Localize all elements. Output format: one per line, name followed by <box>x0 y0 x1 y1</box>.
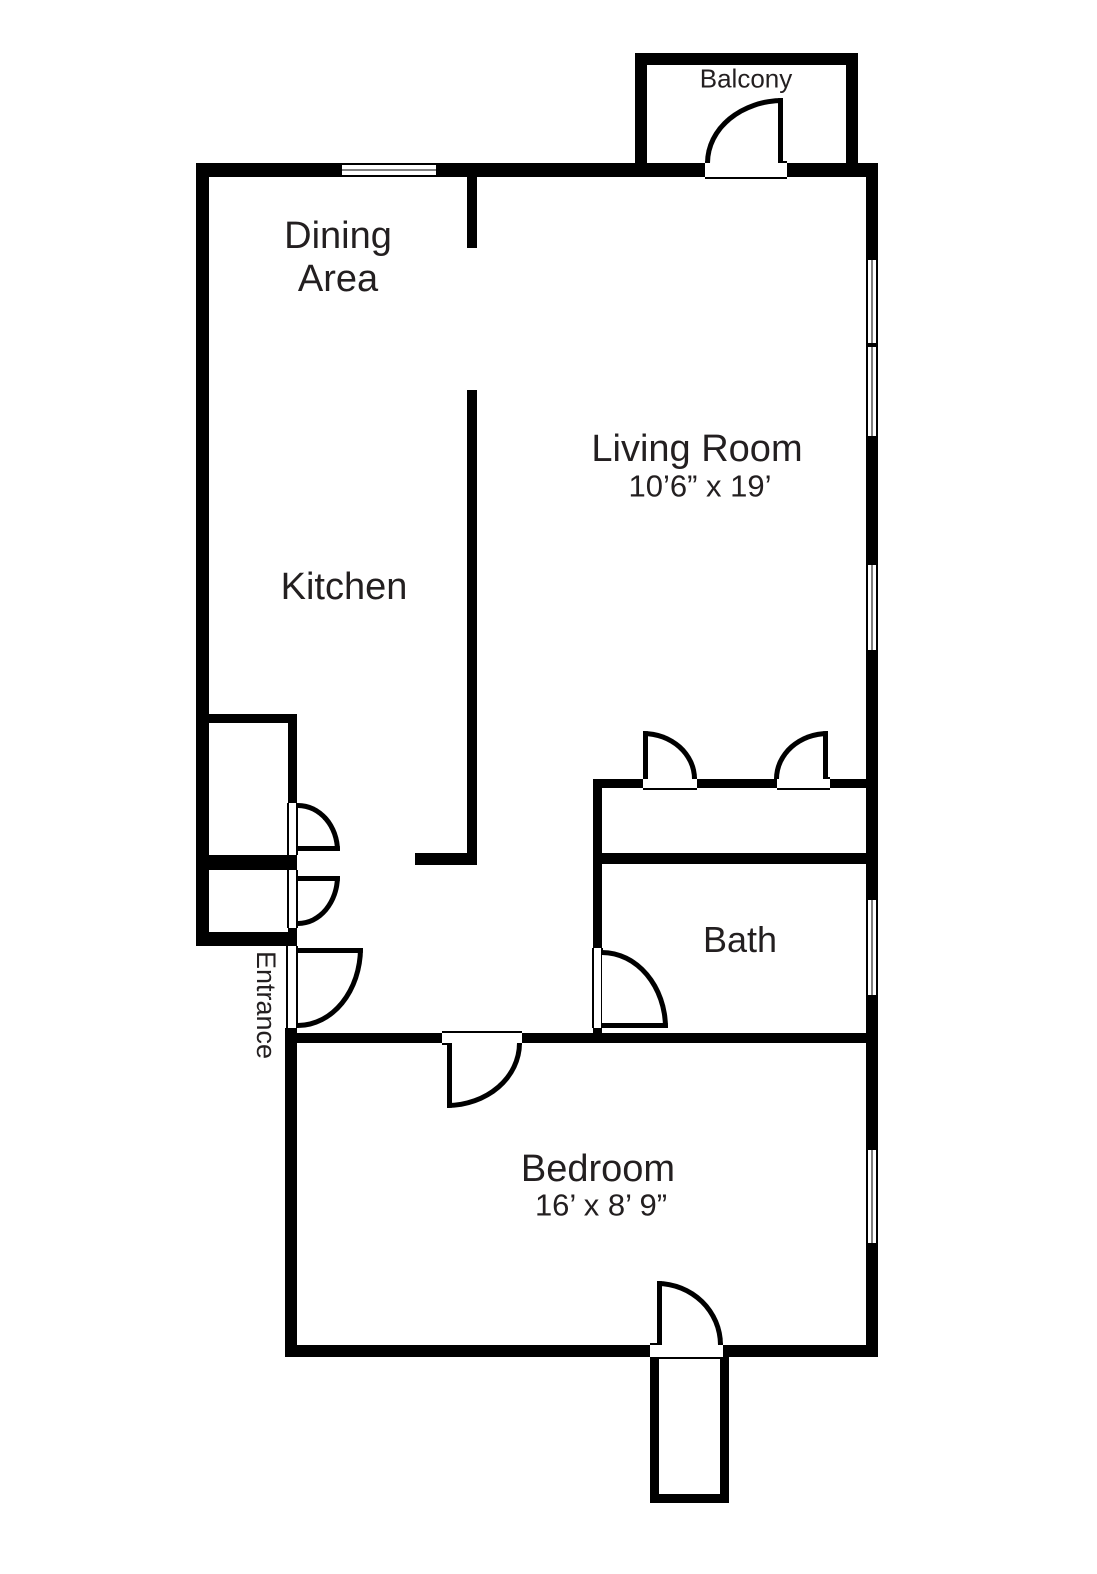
closet-bottom-wall <box>196 932 297 946</box>
divider-wall-foot <box>415 853 477 865</box>
balcony-label: Balcony <box>700 65 793 92</box>
dining-area-label-line1: Dining <box>284 217 392 257</box>
bedroom-top-wall <box>285 1033 878 1043</box>
entrance-label: Entrance <box>252 951 280 1059</box>
closet-top-wall <box>196 714 295 723</box>
living-room-window-2 <box>866 345 878 438</box>
porch-walls <box>650 1356 729 1503</box>
kitchen-label: Kitchen <box>281 568 408 608</box>
bath-door-swing <box>602 950 668 1028</box>
bedroom-door-swing <box>447 1043 522 1108</box>
porch-door-opening <box>650 1343 723 1359</box>
balcony-door-opening <box>705 161 787 179</box>
floorplan-canvas: Balcony Dining Area Living Room 10’6” x … <box>0 0 1097 1574</box>
entrance-door-opening <box>286 946 298 1028</box>
bath-left-wall <box>593 779 602 950</box>
bath-window <box>866 898 878 997</box>
divider-wall-top-stub <box>467 163 477 248</box>
dining-area-label-line2: Area <box>298 260 378 300</box>
closet-divider-wall <box>196 855 297 870</box>
balcony-door-swing <box>705 98 783 163</box>
entrance-door-swing <box>298 948 363 1028</box>
closet-door-2-swing <box>298 876 340 926</box>
closet-door-2-opening <box>287 870 298 928</box>
porch-door-swing <box>657 1281 723 1345</box>
balcony-left-wall <box>635 53 647 163</box>
hall-closet-door-left-swing <box>643 731 697 779</box>
living-room-label: Living Room <box>591 430 802 470</box>
closet-right-wall-upper <box>288 714 297 803</box>
bedroom-dimensions: 16’ x 8’ 9” <box>535 1190 667 1223</box>
hall-closet-door-right-swing <box>774 731 828 779</box>
closet-door-1-swing <box>298 803 340 851</box>
bedroom-bottom-wall <box>285 1345 878 1357</box>
bath-label: Bath <box>703 921 777 959</box>
living-room-window-1 <box>866 258 878 345</box>
dining-window <box>340 163 438 177</box>
divider-wall-main <box>467 390 477 865</box>
bedroom-left-wall <box>285 1028 297 1357</box>
left-wall <box>196 163 209 946</box>
bedroom-window <box>866 1148 878 1245</box>
balcony-right-wall <box>846 53 858 163</box>
closet-door-1-opening <box>287 803 298 855</box>
living-room-dimensions: 10’6” x 19’ <box>628 471 771 504</box>
living-room-window-3 <box>866 563 878 652</box>
bedroom-label: Bedroom <box>521 1150 675 1190</box>
bath-top-wall <box>593 853 866 864</box>
